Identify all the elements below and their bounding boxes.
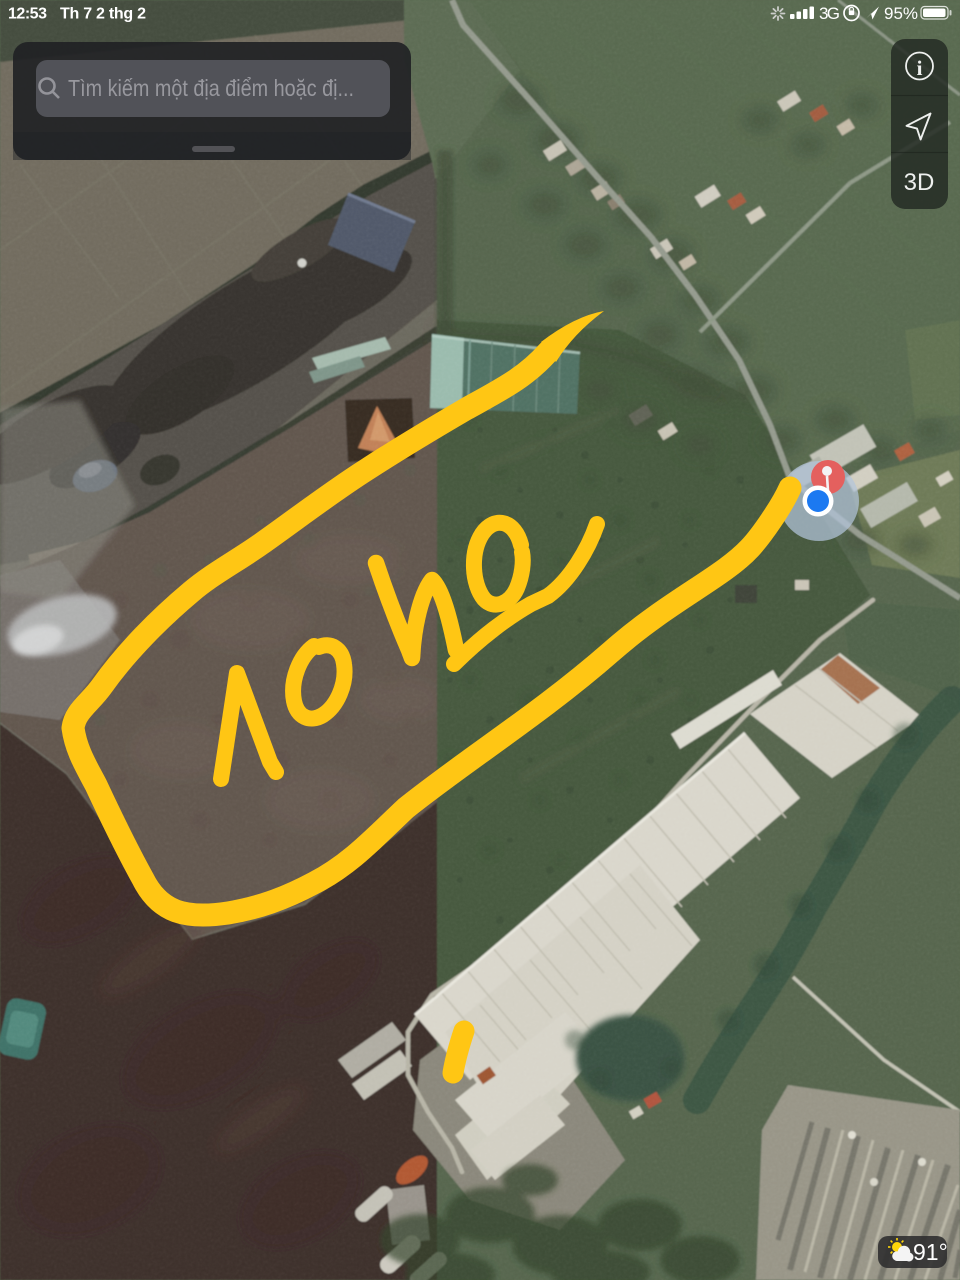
svg-text:91°: 91° [913, 1239, 948, 1265]
svg-text:3D: 3D [904, 169, 935, 196]
svg-text:3G: 3G [819, 4, 840, 23]
svg-text:Tìm kiếm một địa điểm hoặc đị.: Tìm kiếm một địa điểm hoặc đị... [68, 75, 354, 101]
svg-text:i: i [917, 56, 923, 80]
svg-text:Th 7 2 thg 2: Th 7 2 thg 2 [60, 6, 146, 23]
svg-text:95%: 95% [884, 4, 918, 23]
svg-text:12:53: 12:53 [8, 6, 47, 23]
